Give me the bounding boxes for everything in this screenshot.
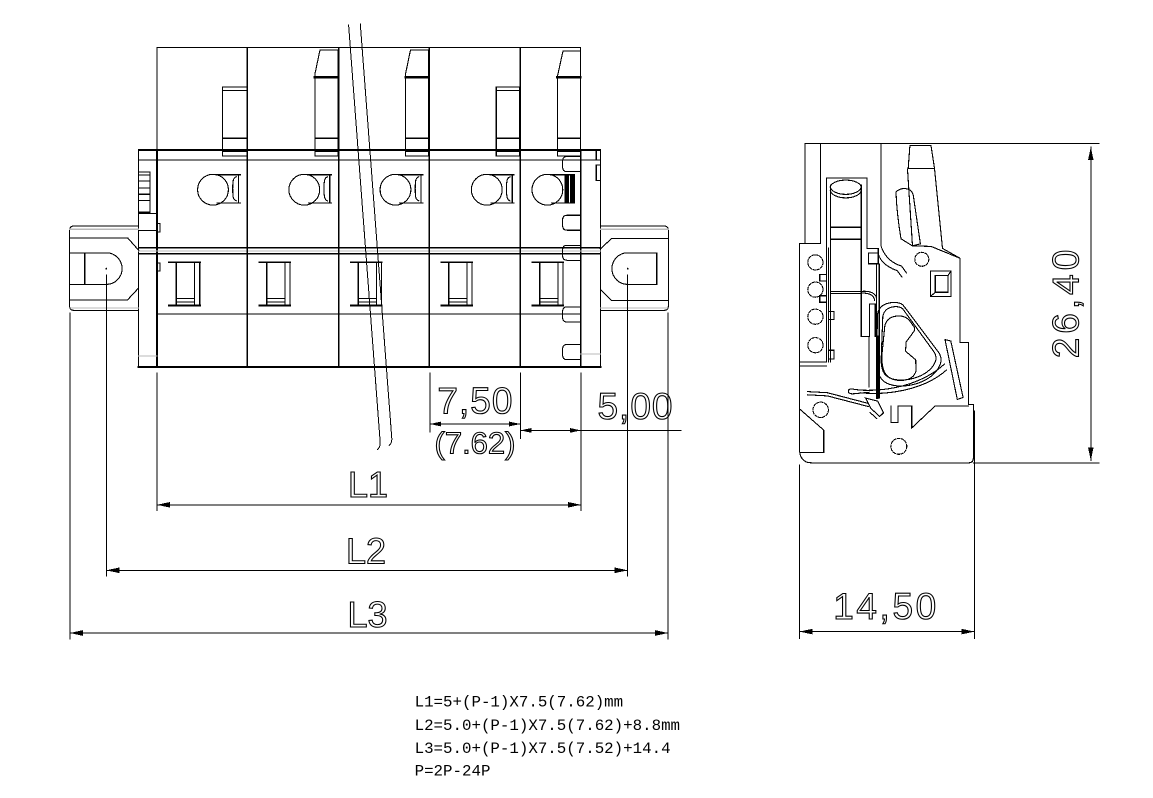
svg-text:(7.62): (7.62) xyxy=(435,426,516,461)
svg-text:L3=5.0+(P-1)X7.5(7.52)+14.4: L3=5.0+(P-1)X7.5(7.52)+14.4 xyxy=(415,740,671,758)
svg-text:26,40: 26,40 xyxy=(1046,246,1087,359)
svg-text:L1: L1 xyxy=(348,464,388,505)
svg-text:14,50: 14,50 xyxy=(833,586,939,627)
svg-text:5,00: 5,00 xyxy=(597,386,673,427)
svg-text:L1=5+(P-1)X7.5(7.62)mm: L1=5+(P-1)X7.5(7.62)mm xyxy=(415,694,624,712)
svg-text:L2: L2 xyxy=(346,531,386,572)
svg-text:L2=5.0+(P-1)X7.5(7.62)+8.8mm: L2=5.0+(P-1)X7.5(7.62)+8.8mm xyxy=(415,717,680,735)
svg-text:7,50: 7,50 xyxy=(437,380,513,421)
svg-text:L3: L3 xyxy=(347,594,387,635)
svg-text:P=2P-24P: P=2P-24P xyxy=(415,763,491,781)
